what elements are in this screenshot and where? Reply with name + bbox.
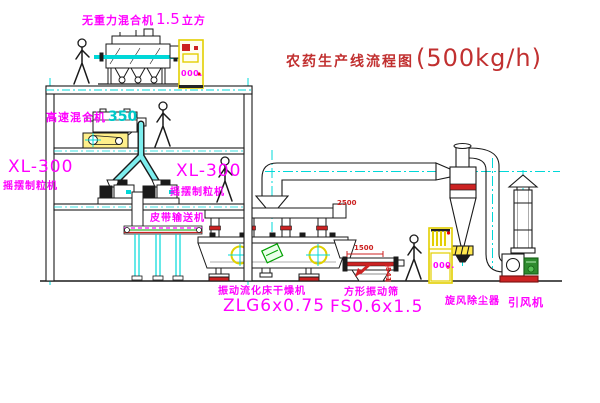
discharge-funnels	[115, 68, 161, 83]
control-cabinet-b	[429, 228, 452, 283]
control-cabinet-a	[179, 40, 203, 88]
high-speed-mixer-label: 高速混合机 350	[46, 110, 137, 124]
cad-flow-diagram: 无重力混合机 1.5 立方 农药生产线流程图 (500kg/h) 高速混合机 3…	[0, 0, 600, 403]
building-column-right	[244, 86, 252, 281]
person-floor-2	[155, 102, 170, 147]
gravity-mixer-unit: 立方	[182, 15, 206, 26]
fan-label: 引风机	[508, 297, 544, 308]
high-speed-mixer-capacity: 350	[108, 110, 137, 124]
high-speed-mixer-name: 高速混合机	[46, 112, 106, 123]
granulator-right-name: 摇摆制粒机	[170, 188, 225, 198]
belt-conveyor	[124, 226, 202, 280]
header-length-dimension: 2500	[337, 200, 356, 207]
title-capacity: (500kg/h)	[416, 46, 542, 70]
title-text: 农药生产线流程图	[286, 55, 414, 69]
granulator-left-name: 摇摆制粒机	[3, 182, 58, 192]
cabinet-b-display: 000.	[433, 262, 455, 270]
gravity-mixer-name: 无重力混合机	[82, 15, 154, 26]
granulator-right-model: XL-300	[176, 163, 241, 180]
discharge-pipe	[132, 192, 143, 228]
induced-draft-fan	[500, 254, 538, 282]
cyclone-label: 旋风除尘器	[445, 297, 500, 307]
granulator-left-model: XL-300	[8, 159, 73, 176]
sieve-width-dimension: 1500	[354, 245, 373, 252]
person-roof	[74, 39, 89, 84]
cabinet-a-display: 000.	[181, 70, 203, 78]
person-ground	[406, 235, 421, 280]
rotary-valve	[452, 246, 473, 262]
sieve-height-dimension: 541	[384, 267, 391, 282]
sieve-model-label: FS0.6x1.5	[330, 299, 423, 316]
belt-conveyor-label: 皮带输送机	[150, 214, 205, 224]
gravity-mixer-capacity: 1.5	[156, 12, 180, 27]
dryer-model-label: ZLG6x0.75	[223, 298, 325, 315]
gravity-mixer-label: 无重力混合机 1.5 立方	[82, 12, 206, 27]
page-title: 农药生产线流程图 (500kg/h)	[286, 46, 542, 70]
dryer-risers	[210, 218, 328, 237]
gravity-free-mixer	[94, 29, 182, 84]
